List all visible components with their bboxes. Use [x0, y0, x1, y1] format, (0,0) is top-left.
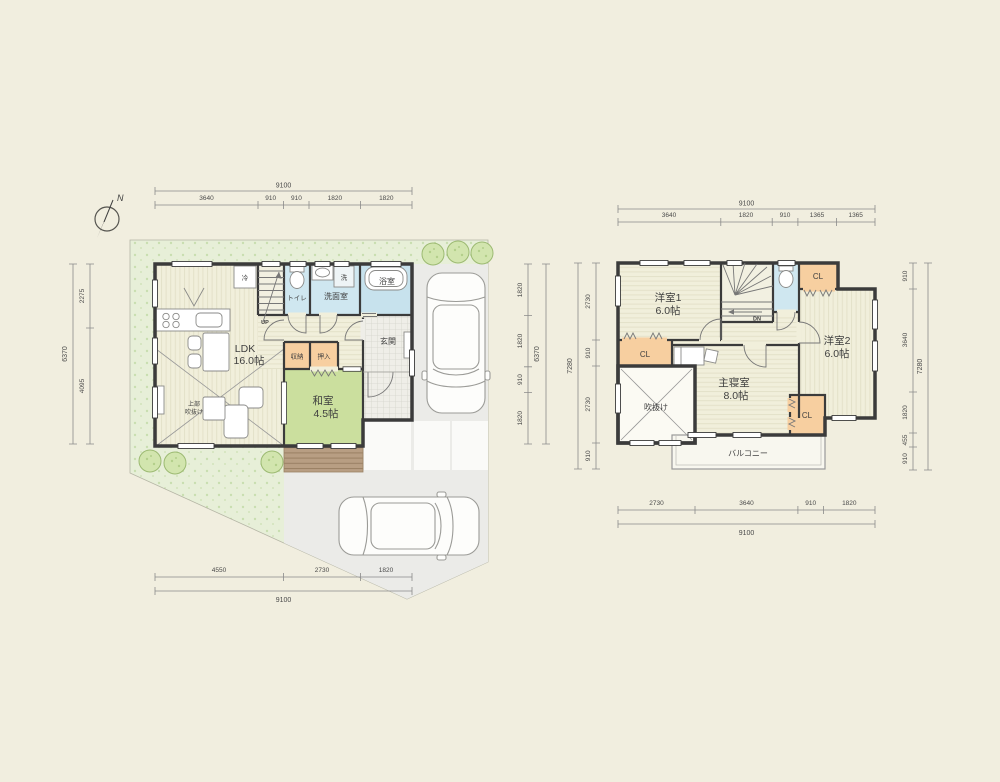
dim-label: 1820	[842, 500, 857, 507]
dim-label: 9100	[276, 183, 292, 190]
room-label-oshiire: 押入	[318, 352, 332, 361]
dim-label: 1820	[517, 411, 524, 426]
dim-label: 910	[805, 500, 816, 507]
floor1-plan: LDK 16.0帖 和室 4.5帖 玄関 トイレ 洗面室 浴室 洗 冷 収納 押…	[62, 183, 550, 605]
toilet-bowl	[779, 271, 793, 288]
room-label-shinshitsu: 主寝室	[718, 376, 750, 389]
room-label-washitsu: 和室	[313, 394, 334, 407]
room-label-fukinuke: 吹抜け	[644, 402, 668, 412]
tree-icon	[261, 451, 283, 473]
dim-label: 6370	[534, 346, 541, 362]
dim-label: 3640	[662, 212, 677, 219]
dining-table	[203, 333, 229, 371]
dim-label: 9100	[739, 201, 755, 208]
dim-label: 1820	[328, 195, 343, 202]
room-size-shinshitsu: 8.0帖	[723, 389, 749, 402]
room-stairs1-floor	[258, 264, 284, 315]
dim-label: 910	[517, 374, 524, 385]
car-icon	[422, 273, 490, 413]
room-label-bath: 浴室	[379, 276, 395, 286]
dim-label: 2275	[79, 288, 86, 303]
sofa	[224, 405, 248, 438]
dim-label: 3640	[902, 332, 909, 347]
wood-deck	[284, 446, 363, 472]
dim-label: 1820	[739, 212, 754, 219]
tree-icon	[164, 452, 186, 474]
kitchen-sink	[196, 313, 222, 327]
void-label-line1: 上部	[188, 400, 200, 408]
room-label-toilet1: トイレ	[287, 295, 307, 302]
label-washer: 洗	[341, 273, 348, 282]
dim-label: 1365	[848, 212, 863, 219]
room-size-yoshitsu2: 6.0帖	[824, 347, 850, 360]
dim-label: 2730	[315, 567, 330, 574]
desk	[674, 347, 704, 365]
dim-label: 4095	[79, 378, 86, 393]
concrete-pad	[414, 421, 450, 470]
label-fridge: 冷	[242, 273, 249, 282]
tree-icon	[422, 243, 444, 265]
room-label-cl-topright: CL	[813, 272, 824, 281]
dim-label: 1365	[810, 212, 825, 219]
room-label-yoshitsu2: 洋室2	[824, 334, 851, 347]
compass-icon: N	[95, 193, 124, 238]
dim-label: 910	[780, 212, 791, 219]
room-label-ldk: LDK	[235, 343, 255, 355]
dim-label: 1820	[517, 333, 524, 348]
room-size-ldk: 16.0帖	[234, 354, 265, 367]
tree-icon	[447, 241, 469, 263]
dim-label: 1820	[379, 567, 394, 574]
room-genkan-floor	[363, 315, 412, 420]
tree-icon	[139, 450, 161, 472]
dim-label: 2730	[649, 500, 664, 507]
dim-label: 7280	[917, 359, 924, 375]
floor2-plan: 洋室1 6.0帖 洋室2 6.0帖 主寝室 8.0帖 吹抜け バルコニー CL …	[567, 201, 932, 538]
floorplan-page: N	[0, 0, 1000, 782]
coffee-table	[203, 397, 225, 420]
dim-label: 1820	[902, 405, 909, 420]
concrete-pad	[364, 421, 411, 470]
void-label-line2: 吹抜け	[185, 408, 203, 416]
floorplan-drawing: N	[0, 0, 1000, 782]
dim-label: 4550	[212, 567, 227, 574]
dim-label: 910	[902, 453, 909, 464]
dim-label: 2730	[585, 294, 592, 309]
toilet-bowl	[290, 272, 304, 289]
room-label-shuno: 収納	[291, 352, 304, 361]
chair	[704, 349, 718, 363]
dim-label: 9100	[739, 530, 755, 537]
dim-label: 7280	[567, 358, 574, 374]
dim-label: 1820	[379, 195, 394, 202]
dim-label: 910	[291, 195, 302, 202]
dining-chair	[188, 336, 201, 350]
room-label-senmen: 洗面室	[324, 291, 348, 301]
hallway2-floor	[672, 322, 799, 345]
stairs-dn-label: DN	[753, 317, 761, 323]
dim-label: 3640	[739, 500, 754, 507]
room-label-balcony: バルコニー	[728, 449, 768, 458]
compass-label: N	[117, 193, 124, 203]
dim-label: 910	[265, 195, 276, 202]
stairs-up-label: UP	[261, 320, 269, 326]
dim-label: 910	[585, 347, 592, 358]
car-icon	[339, 492, 479, 560]
room-label-cl-bottomright: CL	[802, 411, 813, 420]
compass-circle	[95, 207, 119, 231]
dim-label: 455	[902, 434, 909, 445]
room-label-genkan: 玄関	[380, 336, 396, 346]
dim-label: 6370	[62, 346, 69, 362]
tree-icon	[471, 242, 493, 264]
dining-chair	[188, 354, 201, 368]
dim-label: 9100	[276, 597, 292, 604]
dim-label: 1820	[517, 282, 524, 297]
dim-label: 3640	[199, 195, 214, 202]
dim-label: 2730	[585, 397, 592, 412]
concrete-pad	[452, 421, 488, 470]
dim-label: 910	[902, 270, 909, 281]
room-label-yoshitsu1: 洋室1	[655, 291, 682, 304]
room-label-cl-left: CL	[640, 350, 651, 359]
dim-label: 910	[585, 450, 592, 461]
room-size-washitsu: 4.5帖	[313, 407, 339, 420]
room-size-yoshitsu1: 6.0帖	[655, 304, 681, 317]
